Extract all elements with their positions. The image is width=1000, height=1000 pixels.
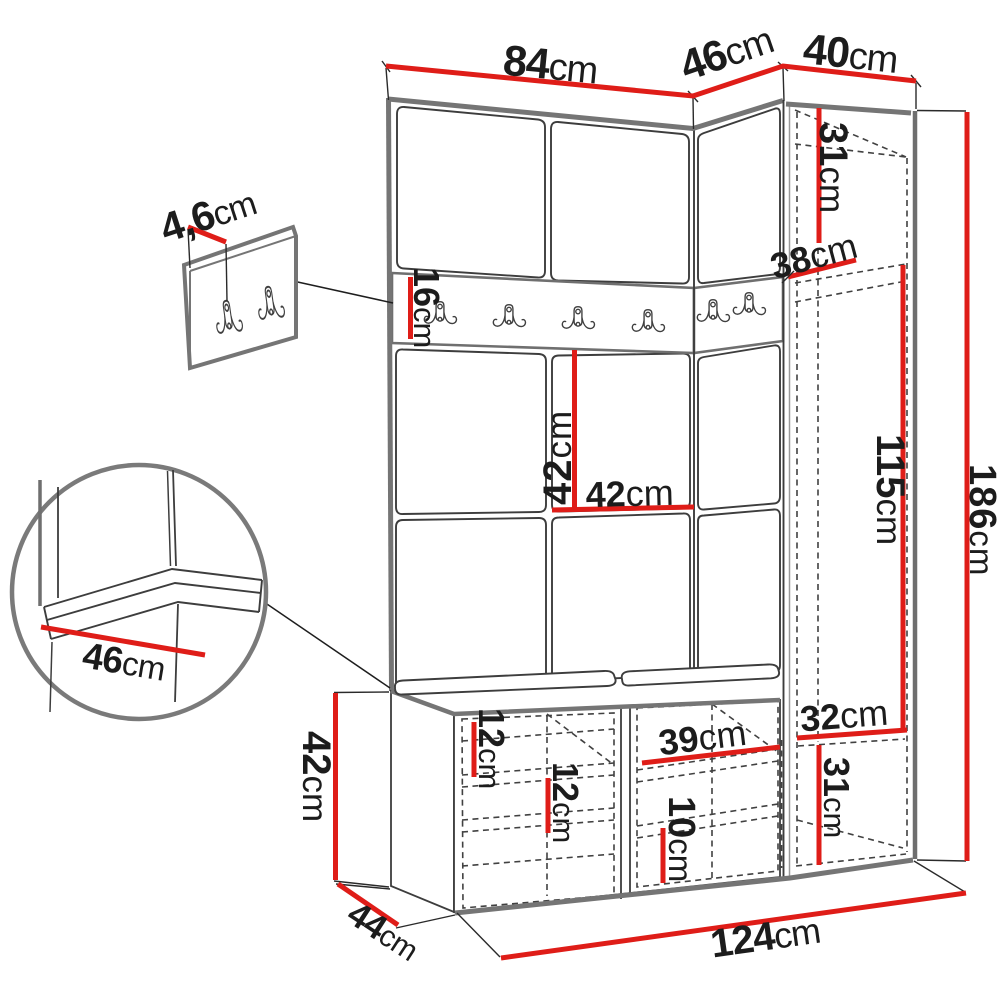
svg-text:42cm: 42cm [585, 472, 674, 515]
svg-text:10cm: 10cm [660, 796, 702, 882]
svg-text:12cm: 12cm [545, 762, 586, 843]
svg-text:16cm: 16cm [406, 267, 447, 348]
svg-text:42cm: 42cm [536, 410, 580, 505]
svg-text:31cm: 31cm [816, 757, 857, 838]
svg-text:115cm: 115cm [868, 434, 912, 545]
svg-text:31cm: 31cm [811, 122, 855, 213]
svg-text:32cm: 32cm [799, 692, 890, 740]
svg-text:186cm: 186cm [961, 464, 1000, 576]
svg-text:12cm: 12cm [471, 708, 512, 789]
svg-text:42cm: 42cm [294, 731, 338, 822]
